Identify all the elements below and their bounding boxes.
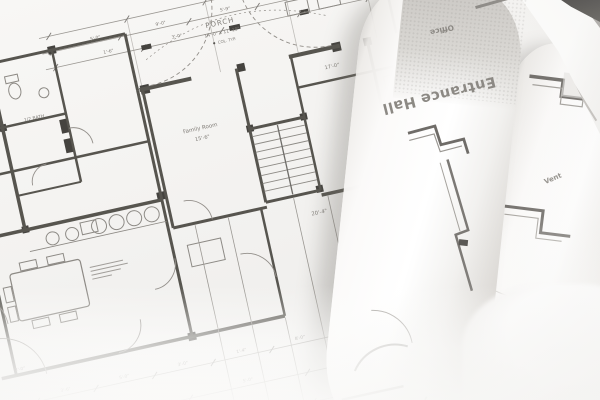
family-room-dim: 15'-6" <box>195 134 211 143</box>
family-room-label: Family Room <box>183 122 219 135</box>
porch-note: COL. TYP. <box>217 36 236 45</box>
blueprint-photo: PORCH 14'-0" x 11'-10" COL. TYP. 1/2 BAT… <box>0 0 600 400</box>
half-bath-label: 1/2 BATH <box>23 113 44 123</box>
dimension-text: 17'-0" <box>324 62 340 71</box>
dimension-text: 20'-4" <box>311 208 328 217</box>
bottom-light-fade <box>0 285 600 400</box>
porch-note-dot <box>213 42 216 45</box>
note-block <box>90 259 130 280</box>
